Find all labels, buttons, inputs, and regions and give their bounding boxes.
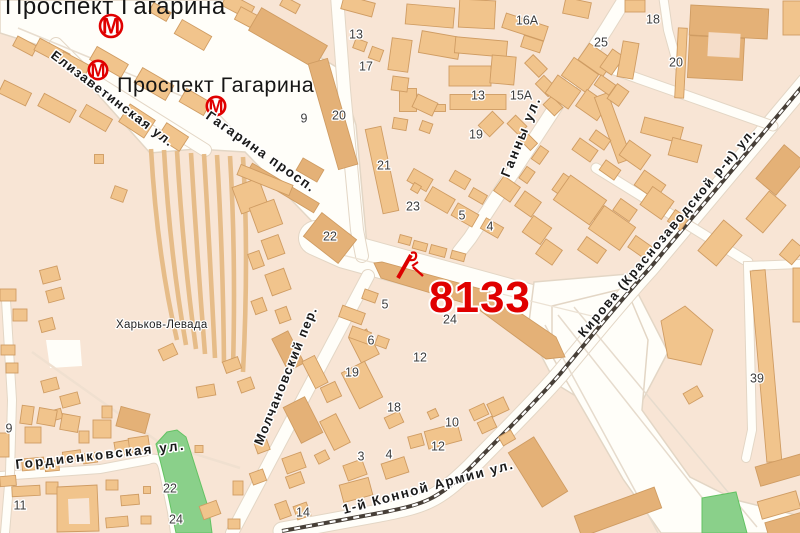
svg-text:9: 9 (301, 112, 308, 126)
svg-text:24: 24 (443, 313, 457, 327)
svg-text:19: 19 (469, 128, 483, 142)
svg-text:5: 5 (459, 209, 466, 223)
svg-text:25: 25 (594, 36, 608, 50)
svg-text:18: 18 (387, 401, 401, 415)
svg-text:22: 22 (163, 482, 177, 496)
svg-text:15А: 15А (510, 89, 533, 103)
svg-text:21: 21 (377, 159, 391, 173)
svg-text:11: 11 (14, 499, 27, 513)
svg-text:3: 3 (358, 450, 365, 464)
svg-text:22: 22 (323, 230, 337, 244)
svg-text:10: 10 (445, 416, 459, 430)
svg-text:4: 4 (487, 220, 494, 234)
svg-text:Проспект Гагарина: Проспект Гагарина (117, 73, 314, 97)
svg-text:4: 4 (386, 448, 393, 462)
svg-text:Проспект Гагарина: Проспект Гагарина (5, 0, 226, 20)
svg-text:13: 13 (471, 89, 485, 103)
svg-text:20: 20 (669, 56, 683, 70)
svg-text:17: 17 (359, 60, 373, 74)
svg-text:20: 20 (332, 109, 346, 123)
svg-text:6: 6 (368, 334, 375, 348)
svg-text:Харьков-Левада: Харьков-Левада (116, 319, 208, 331)
svg-text:5: 5 (382, 298, 389, 312)
svg-text:13: 13 (349, 28, 363, 42)
svg-text:18: 18 (646, 13, 660, 27)
svg-text:24: 24 (169, 513, 183, 527)
svg-text:12: 12 (413, 351, 427, 365)
svg-text:9: 9 (6, 422, 13, 436)
svg-text:19: 19 (345, 366, 359, 380)
svg-text:16А: 16А (516, 14, 539, 28)
svg-text:12: 12 (431, 440, 445, 454)
svg-text:39: 39 (750, 372, 764, 386)
svg-text:23: 23 (406, 200, 420, 214)
svg-text:14: 14 (296, 506, 310, 520)
